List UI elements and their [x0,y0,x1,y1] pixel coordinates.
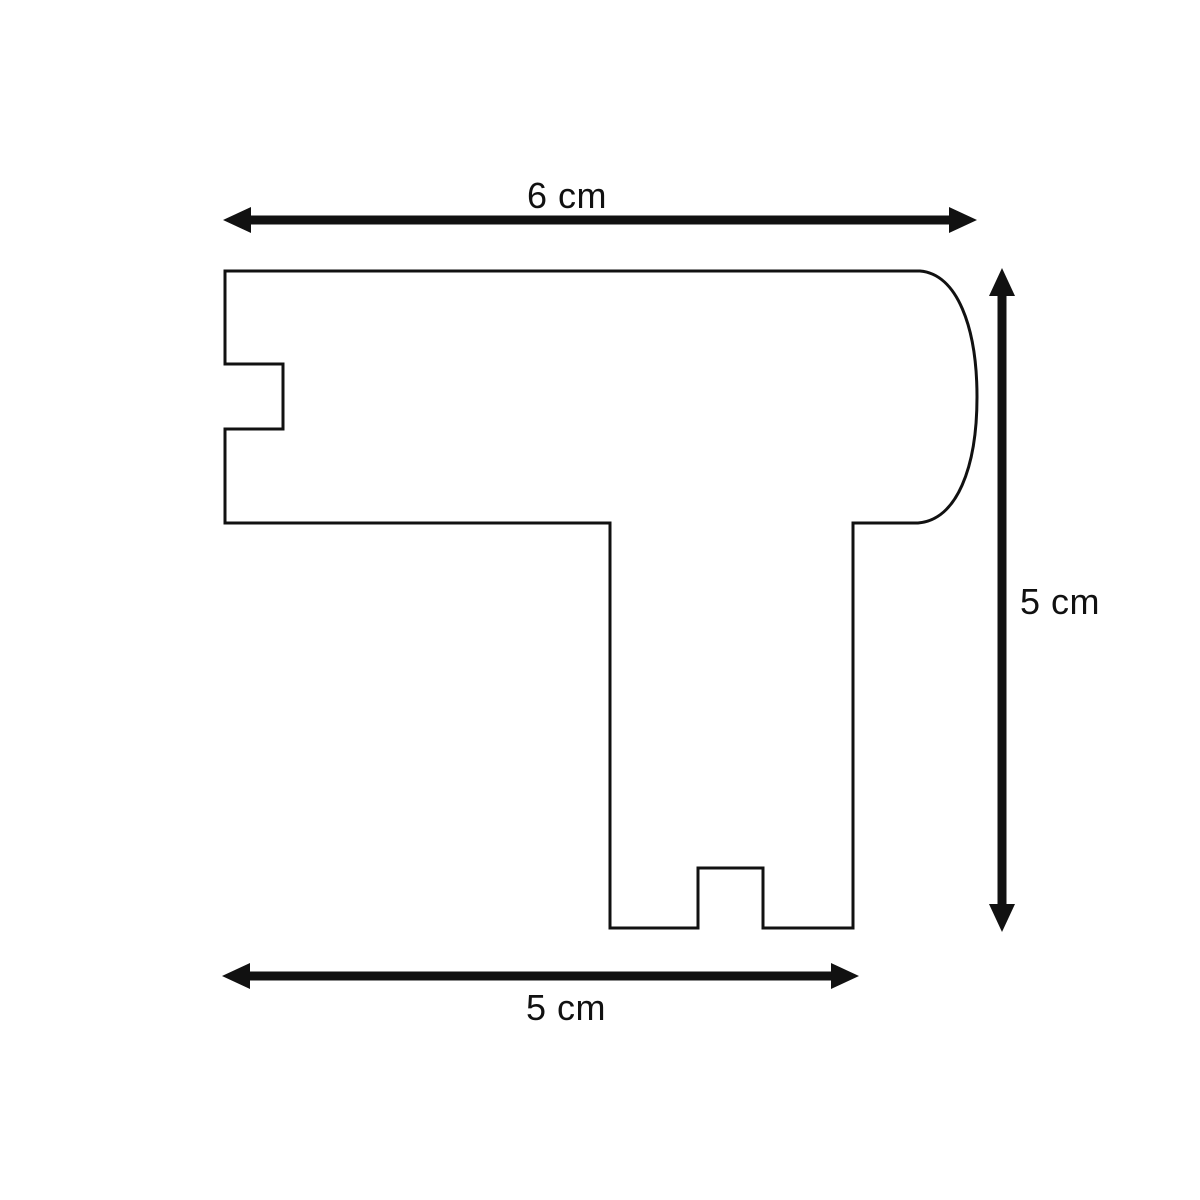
arrow-down-icon [989,904,1015,932]
profile-cross-section-diagram: 6 cm 5 cm 5 cm [0,0,1200,1200]
arrow-right-icon [831,963,859,989]
dimension-bottom-label: 5 cm [526,987,606,1028]
arrow-left-icon [223,207,251,233]
arrow-left-icon [222,963,250,989]
dimension-top-label: 6 cm [527,175,607,216]
dimension-right-label: 5 cm [1020,581,1100,622]
dimension-right: 5 cm [989,268,1100,932]
profile-outline-shape [225,271,977,928]
arrow-up-icon [989,268,1015,296]
arrow-right-icon [949,207,977,233]
diagram-canvas: 6 cm 5 cm 5 cm [0,0,1200,1200]
dimension-bottom: 5 cm [222,963,859,1028]
dimension-top: 6 cm [223,175,977,233]
